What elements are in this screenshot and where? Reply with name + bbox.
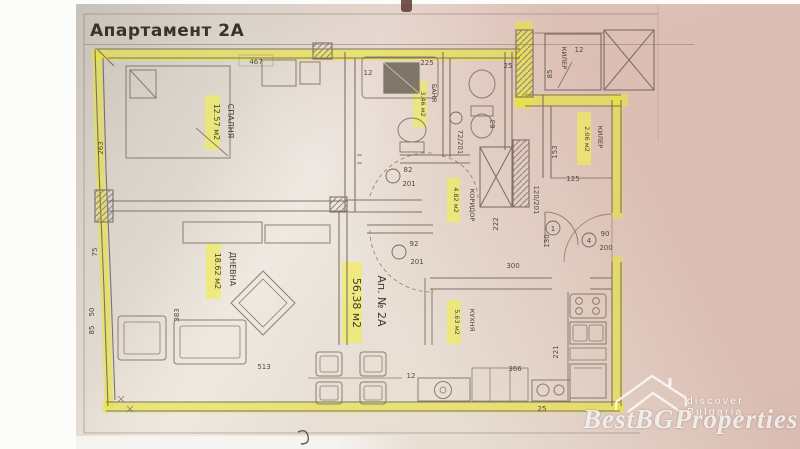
furniture [118,57,606,444]
dim-bath-note: 12 [364,69,373,77]
dim-left-c: 85 [88,326,96,335]
kitchen-name: КУХНЯ [468,309,476,331]
door-entry-h: 200 [599,244,612,252]
dim-pantry-width: 125 [566,175,579,183]
dining-set [308,352,402,404]
door-entry-w: 90 [601,230,610,238]
floorplan-photo: Апартамент 2А СПАЛНЯ 12.57 м2 ДНЕВНА 18.… [0,0,800,449]
sofa [174,320,246,364]
dim-bath-width: 225 [420,59,433,67]
dim-shaft-w: 12 [575,46,584,54]
highlighter-perimeter [97,30,622,407]
fridge [570,364,606,398]
dim-pantry-height: 153 [551,145,559,158]
dim-living-width: 383 [173,308,181,321]
door-bedroom-h: 201 [402,180,415,188]
dim-kitchen-width: 300 [506,262,519,270]
dim-bottom-a: 12 [407,372,416,380]
apartment-name: Ап. № 2А [375,275,388,327]
sink [469,70,495,98]
bedroom-name: СПАЛНЯ [226,104,235,139]
dim-wc-width: 63 [489,120,497,129]
kitchen-area: 5.63 м2 [453,309,461,335]
kitchen-counter [568,292,606,400]
toilet [398,118,426,142]
dim-left-b: 50 [88,308,96,317]
dim-kitchen-height: 221 [552,345,560,358]
bedroom-area: 12.57 м2 [212,104,221,141]
apartment-area: 56,38 м2 [350,278,363,328]
dim-top-width: 467 [249,58,262,66]
bath-name: БАНЯ [430,84,438,102]
dim-living-bottom: 513 [257,363,270,371]
door-hall-num: 1 [551,225,555,233]
pantry-small-name: КИЛЕР [560,47,568,69]
dim-wc-wall: 25 [504,62,513,70]
dimensions: 467 263 225 12 25 63 12 85 153 125 222 1… [88,46,583,413]
door-living-h: 201 [410,258,423,266]
door-living-w: 92 [410,240,419,248]
dim-bedroom-height: 263 [97,141,105,154]
door-entry-num: 4 [587,237,592,245]
dim-shaft-h: 85 [546,70,554,79]
corridor-name: КОРИДОР [468,189,476,222]
dim-left-a: 75 [91,248,99,257]
dim-hall-width: 130 [543,234,551,247]
armchair [118,316,166,360]
dim-hall-height: 222 [492,217,500,230]
bath-area: 3.46 м2 [419,91,427,117]
dim-bottom-b: 25 [538,405,547,413]
corridor-area: 4.82 м2 [452,187,460,213]
pantry-name: КИЛЕР [596,126,604,148]
watermark-brand: BestBGProperties [583,404,800,435]
dim-kitchen-bottom: 366 [508,365,522,373]
plan-title: Апартамент 2А [90,21,245,41]
living-area: 18.62 м2 [213,253,222,290]
door-bath: 72/201 [456,130,464,155]
coffee-table [231,271,295,335]
stove [570,294,606,318]
pantry-area: 2.06 м2 [583,126,591,152]
door-pantry: 120/201 [532,185,540,214]
door-bedroom-w: 82 [404,166,413,174]
living-name: ДНЕВНА [228,252,237,287]
